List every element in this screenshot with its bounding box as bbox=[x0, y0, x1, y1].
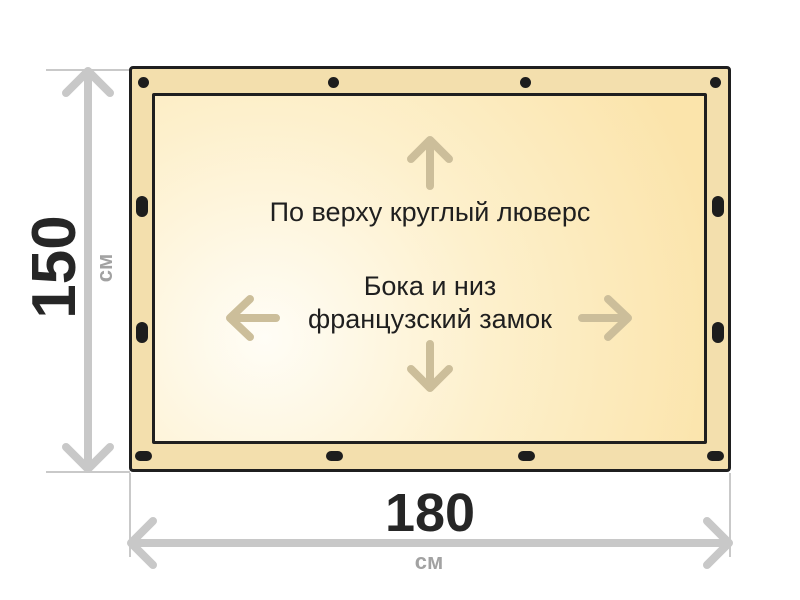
french-lock-slot-icon bbox=[518, 451, 535, 461]
width-value: 180 bbox=[330, 486, 530, 540]
top-edge-label: По верху круглый люверс bbox=[130, 196, 730, 229]
round-eyelet-icon bbox=[138, 77, 149, 88]
center-label-line1: Бока и низ bbox=[130, 270, 730, 303]
round-eyelet-icon bbox=[710, 77, 721, 88]
round-eyelet-icon bbox=[328, 77, 339, 88]
height-value: 150 bbox=[25, 167, 85, 367]
french-lock-slot-icon bbox=[326, 451, 343, 461]
arrow-down-icon bbox=[406, 340, 454, 394]
center-label-line2: французский замок bbox=[130, 303, 730, 336]
round-eyelet-icon bbox=[520, 77, 531, 88]
arrow-up-icon bbox=[406, 132, 454, 190]
center-label: Бока и низ французский замок bbox=[130, 270, 730, 336]
height-unit: см bbox=[93, 238, 117, 298]
french-lock-slot-icon bbox=[707, 451, 724, 461]
width-unit: см bbox=[379, 551, 479, 573]
french-lock-slot-icon bbox=[135, 451, 152, 461]
tarp-dimension-diagram: По верху круглый люверс Бока и низ франц… bbox=[0, 0, 800, 600]
